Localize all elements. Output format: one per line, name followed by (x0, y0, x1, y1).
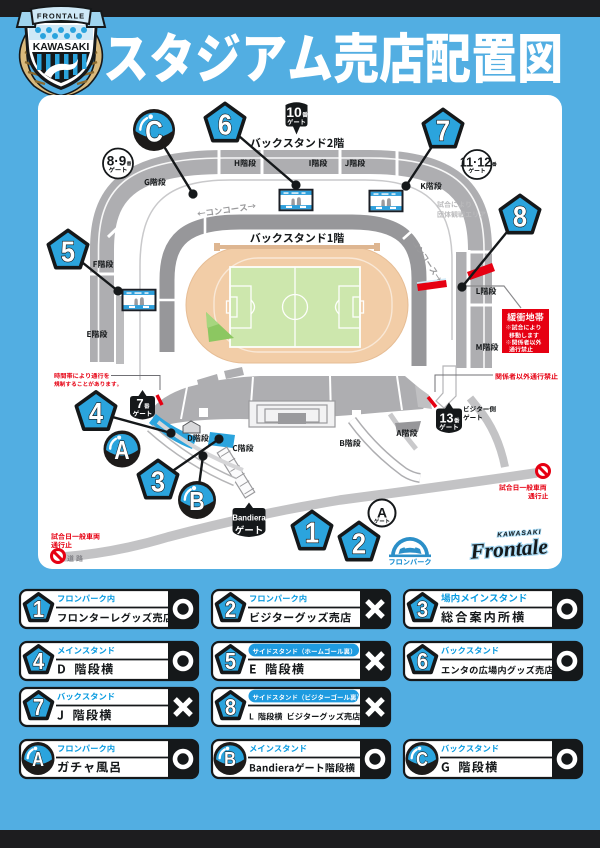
svg-text:7: 7 (136, 396, 143, 411)
svg-text:7: 7 (436, 114, 450, 147)
svg-text:1: 1 (33, 596, 44, 623)
svg-text:4: 4 (33, 648, 44, 675)
svg-text:A: A (377, 505, 387, 521)
svg-text:7: 7 (33, 694, 44, 721)
svg-text:10: 10 (286, 104, 302, 120)
svg-text:3: 3 (417, 596, 428, 623)
svg-text:11·12: 11·12 (460, 155, 491, 169)
svg-text:2: 2 (352, 527, 366, 560)
svg-text:13: 13 (440, 412, 454, 426)
svg-text:8: 8 (225, 694, 236, 721)
svg-text:5: 5 (225, 648, 236, 675)
svg-text:KAWASAKI: KAWASAKI (33, 41, 90, 53)
svg-text:6: 6 (218, 108, 232, 141)
svg-text:2: 2 (225, 596, 236, 623)
svg-text:1: 1 (305, 516, 319, 549)
svg-text:8·9: 8·9 (107, 154, 127, 169)
svg-text:A: A (114, 436, 129, 466)
svg-text:5: 5 (61, 235, 75, 268)
svg-text:6: 6 (417, 648, 428, 675)
svg-text:FRONTALE: FRONTALE (37, 12, 85, 21)
svg-text:8: 8 (513, 200, 527, 233)
svg-text:3: 3 (151, 465, 165, 498)
svg-text:B: B (224, 748, 236, 771)
svg-text:B: B (189, 487, 204, 517)
svg-text:A: A (32, 748, 44, 771)
svg-text:4: 4 (89, 396, 104, 429)
svg-text:C: C (416, 748, 428, 771)
svg-text:C: C (145, 114, 163, 148)
svg-text:Bandiera: Bandiera (232, 514, 266, 523)
